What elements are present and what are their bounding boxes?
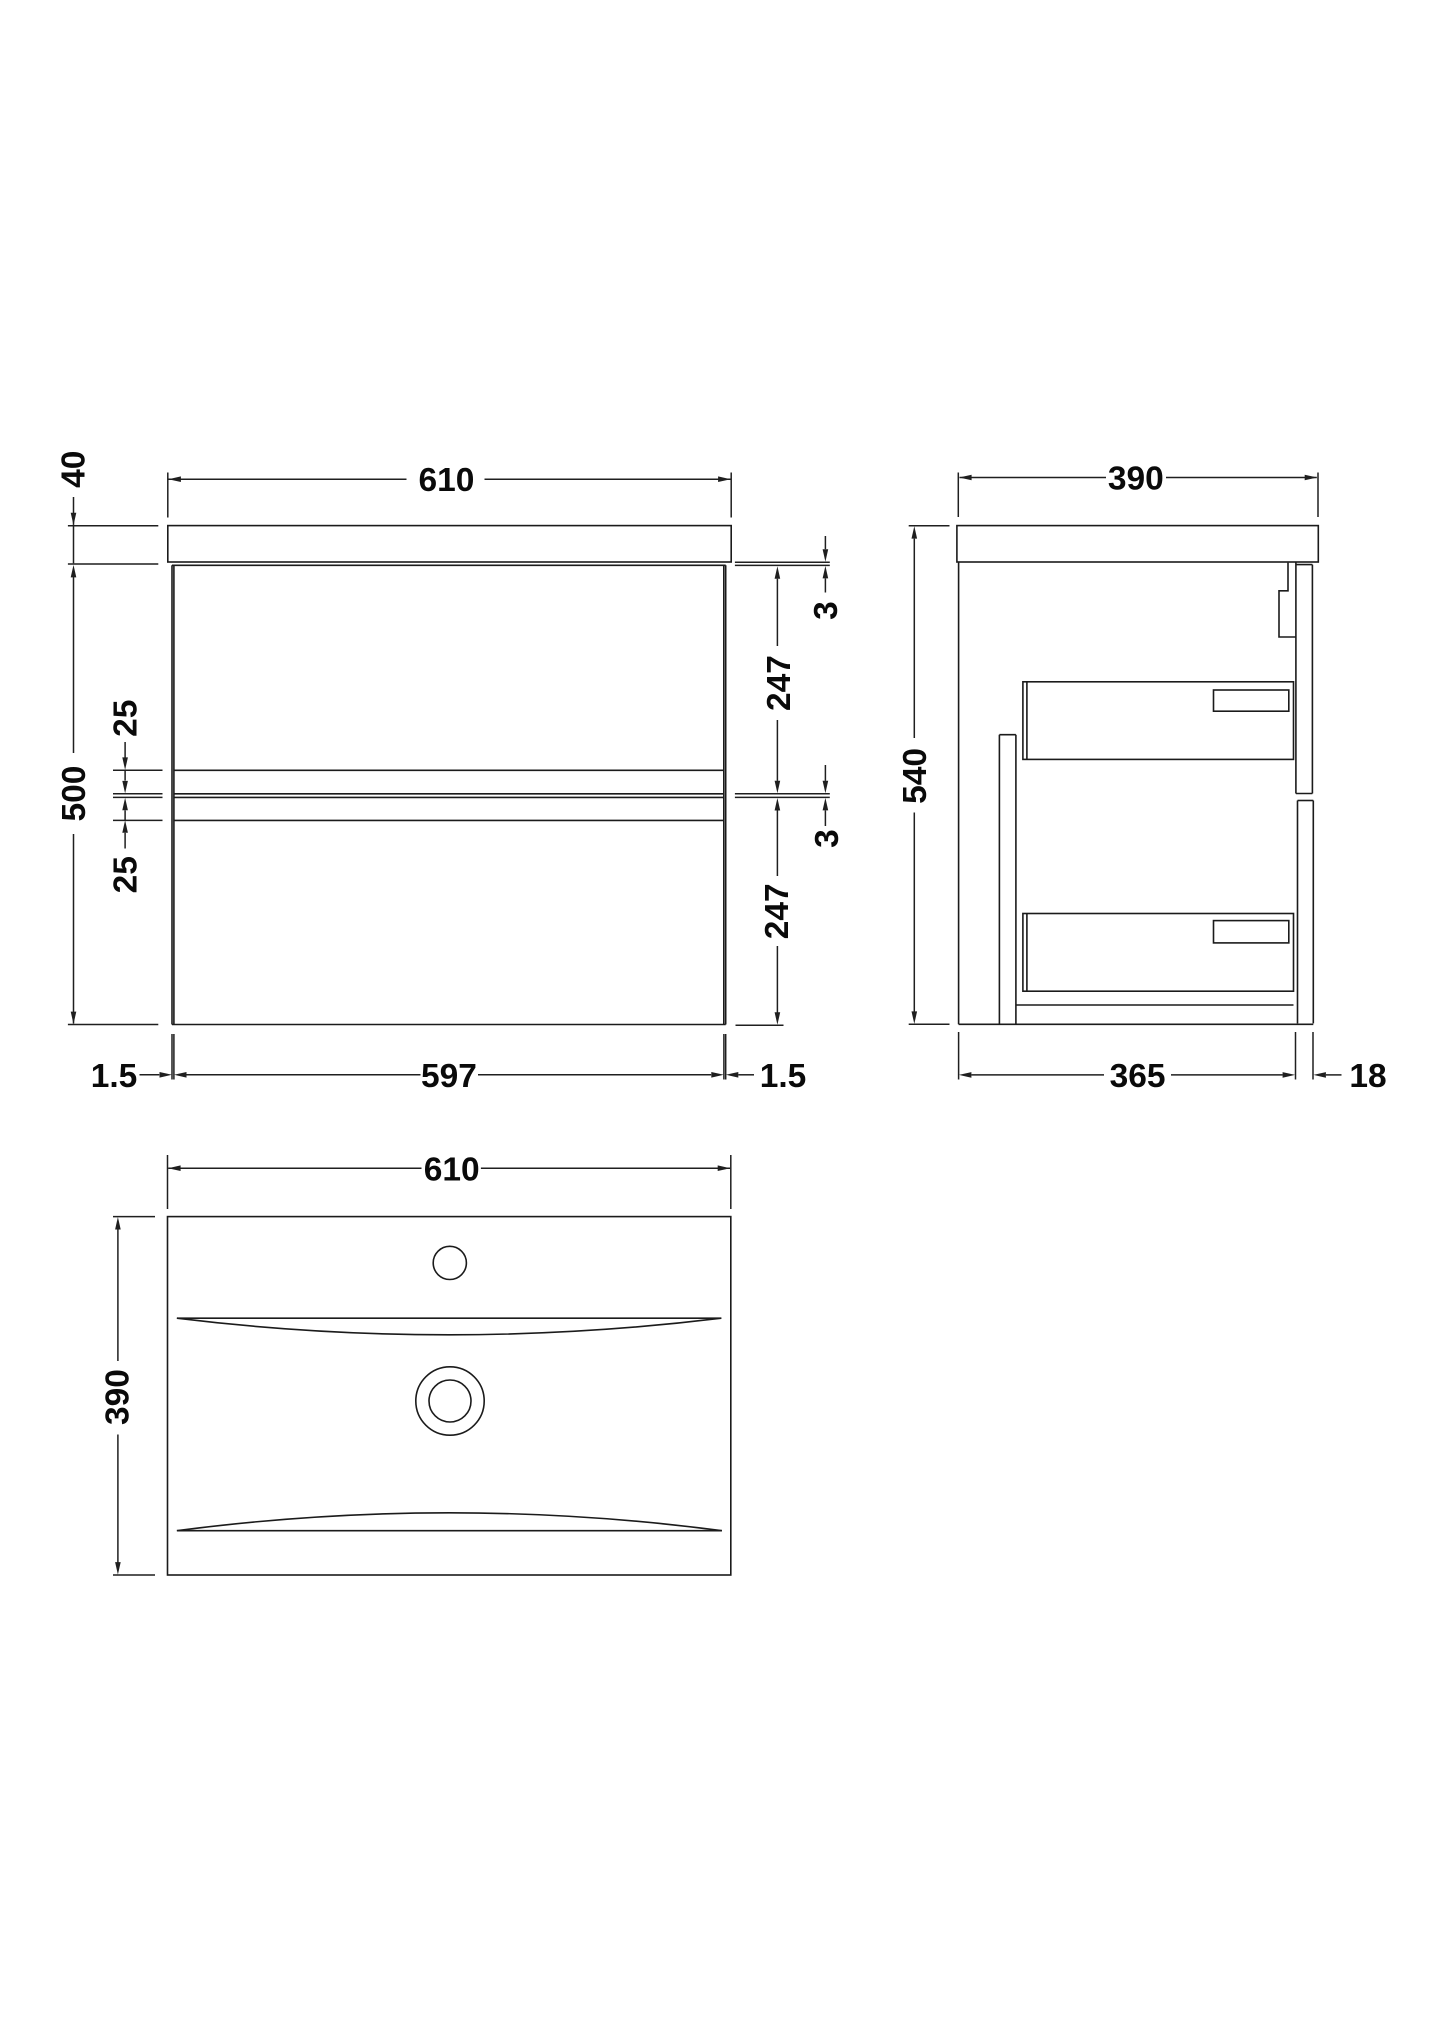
svg-text:540: 540 bbox=[897, 748, 934, 804]
svg-text:25: 25 bbox=[108, 700, 145, 737]
svg-text:25: 25 bbox=[108, 856, 145, 893]
svg-text:1.5: 1.5 bbox=[760, 1058, 807, 1095]
svg-text:247: 247 bbox=[761, 655, 798, 711]
svg-text:500: 500 bbox=[56, 766, 93, 822]
svg-text:18: 18 bbox=[1349, 1058, 1386, 1095]
svg-text:610: 610 bbox=[419, 462, 475, 499]
svg-text:597: 597 bbox=[421, 1058, 477, 1095]
svg-text:247: 247 bbox=[759, 883, 796, 939]
svg-text:390: 390 bbox=[1108, 461, 1164, 498]
svg-text:40: 40 bbox=[56, 451, 93, 488]
svg-text:390: 390 bbox=[100, 1369, 137, 1425]
svg-text:3: 3 bbox=[809, 829, 846, 848]
svg-text:1.5: 1.5 bbox=[91, 1058, 138, 1095]
svg-text:610: 610 bbox=[424, 1151, 480, 1188]
svg-text:365: 365 bbox=[1110, 1058, 1166, 1095]
svg-text:3: 3 bbox=[808, 601, 845, 620]
